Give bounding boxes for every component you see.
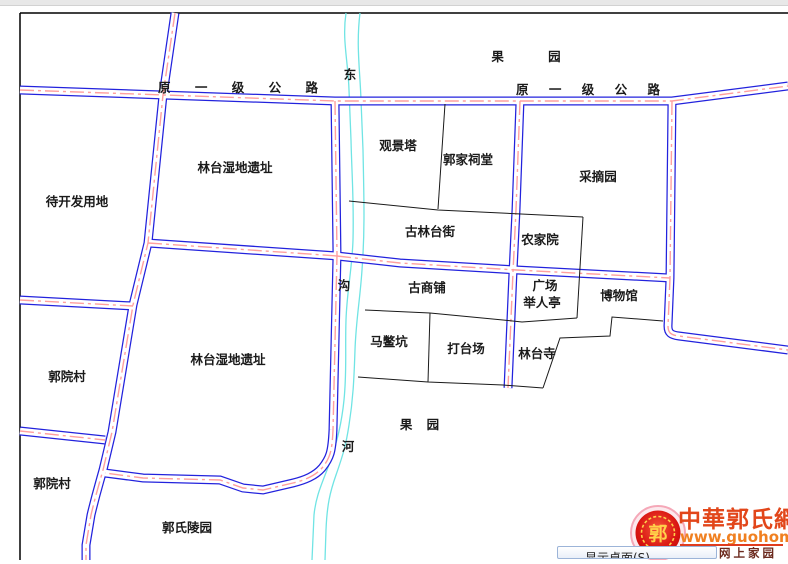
desktop-screenshot: { "map": { "labels": [ {"text": "果 园"}, … <box>0 0 788 560</box>
seal-character: 郭 <box>648 522 667 545</box>
label-museum: 博物馆 <box>600 288 638 303</box>
label-wetland-site-south: 林台湿地遗址 <box>190 352 266 367</box>
label-guo-ancestral-hall: 郭家祠堂 <box>443 152 493 167</box>
label-wetland-site-north: 林台湿地遗址 <box>197 160 273 175</box>
label-lintai-temple: 林台寺 <box>518 346 556 361</box>
label-highway-east: 原 一 级 公 路 <box>516 82 668 97</box>
label-east-direction: 东 <box>344 67 357 82</box>
site-plan-map: 果 园 原 一 级 公 路 原 一 级 公 路 东 观景塔 郭家祠堂 采摘园 林… <box>0 0 788 560</box>
label-orchard-north: 果 园 <box>490 49 580 64</box>
label-ditch: 沟 <box>338 278 351 293</box>
label-datai-ground: 打台场 <box>447 341 485 356</box>
label-plaza: 广场 <box>532 278 557 293</box>
show-desktop-tooltip: 显示桌面(S) <box>557 546 717 559</box>
road-surfaces <box>20 13 788 560</box>
label-gulintai-street: 古林台街 <box>405 224 456 239</box>
label-guoyuan-village-north: 郭院村 <box>48 369 86 384</box>
site-url-text: www.guohome.org <box>680 528 788 546</box>
label-river: 河 <box>342 439 355 454</box>
label-juren-pavilion: 举人亭 <box>522 295 561 310</box>
label-highway-west: 原 一 级 公 路 <box>158 80 328 95</box>
label-picking-garden: 采摘园 <box>578 169 617 184</box>
label-guoyuan-village-south: 郭院村 <box>33 476 71 491</box>
label-undeveloped-land: 待开发用地 <box>46 194 109 209</box>
label-farmhouse: 农家院 <box>520 232 559 247</box>
label-orchard-south: 果 园 <box>399 417 444 432</box>
label-mabie-pit: 马鳖坑 <box>370 334 408 349</box>
label-guo-cemetery: 郭氏陵园 <box>162 520 212 535</box>
tooltip-text: 显示桌面(S) <box>585 551 650 559</box>
label-old-shops: 古商铺 <box>408 280 446 295</box>
label-viewing-tower: 观景塔 <box>379 138 417 153</box>
top-gray-strip <box>0 0 788 6</box>
